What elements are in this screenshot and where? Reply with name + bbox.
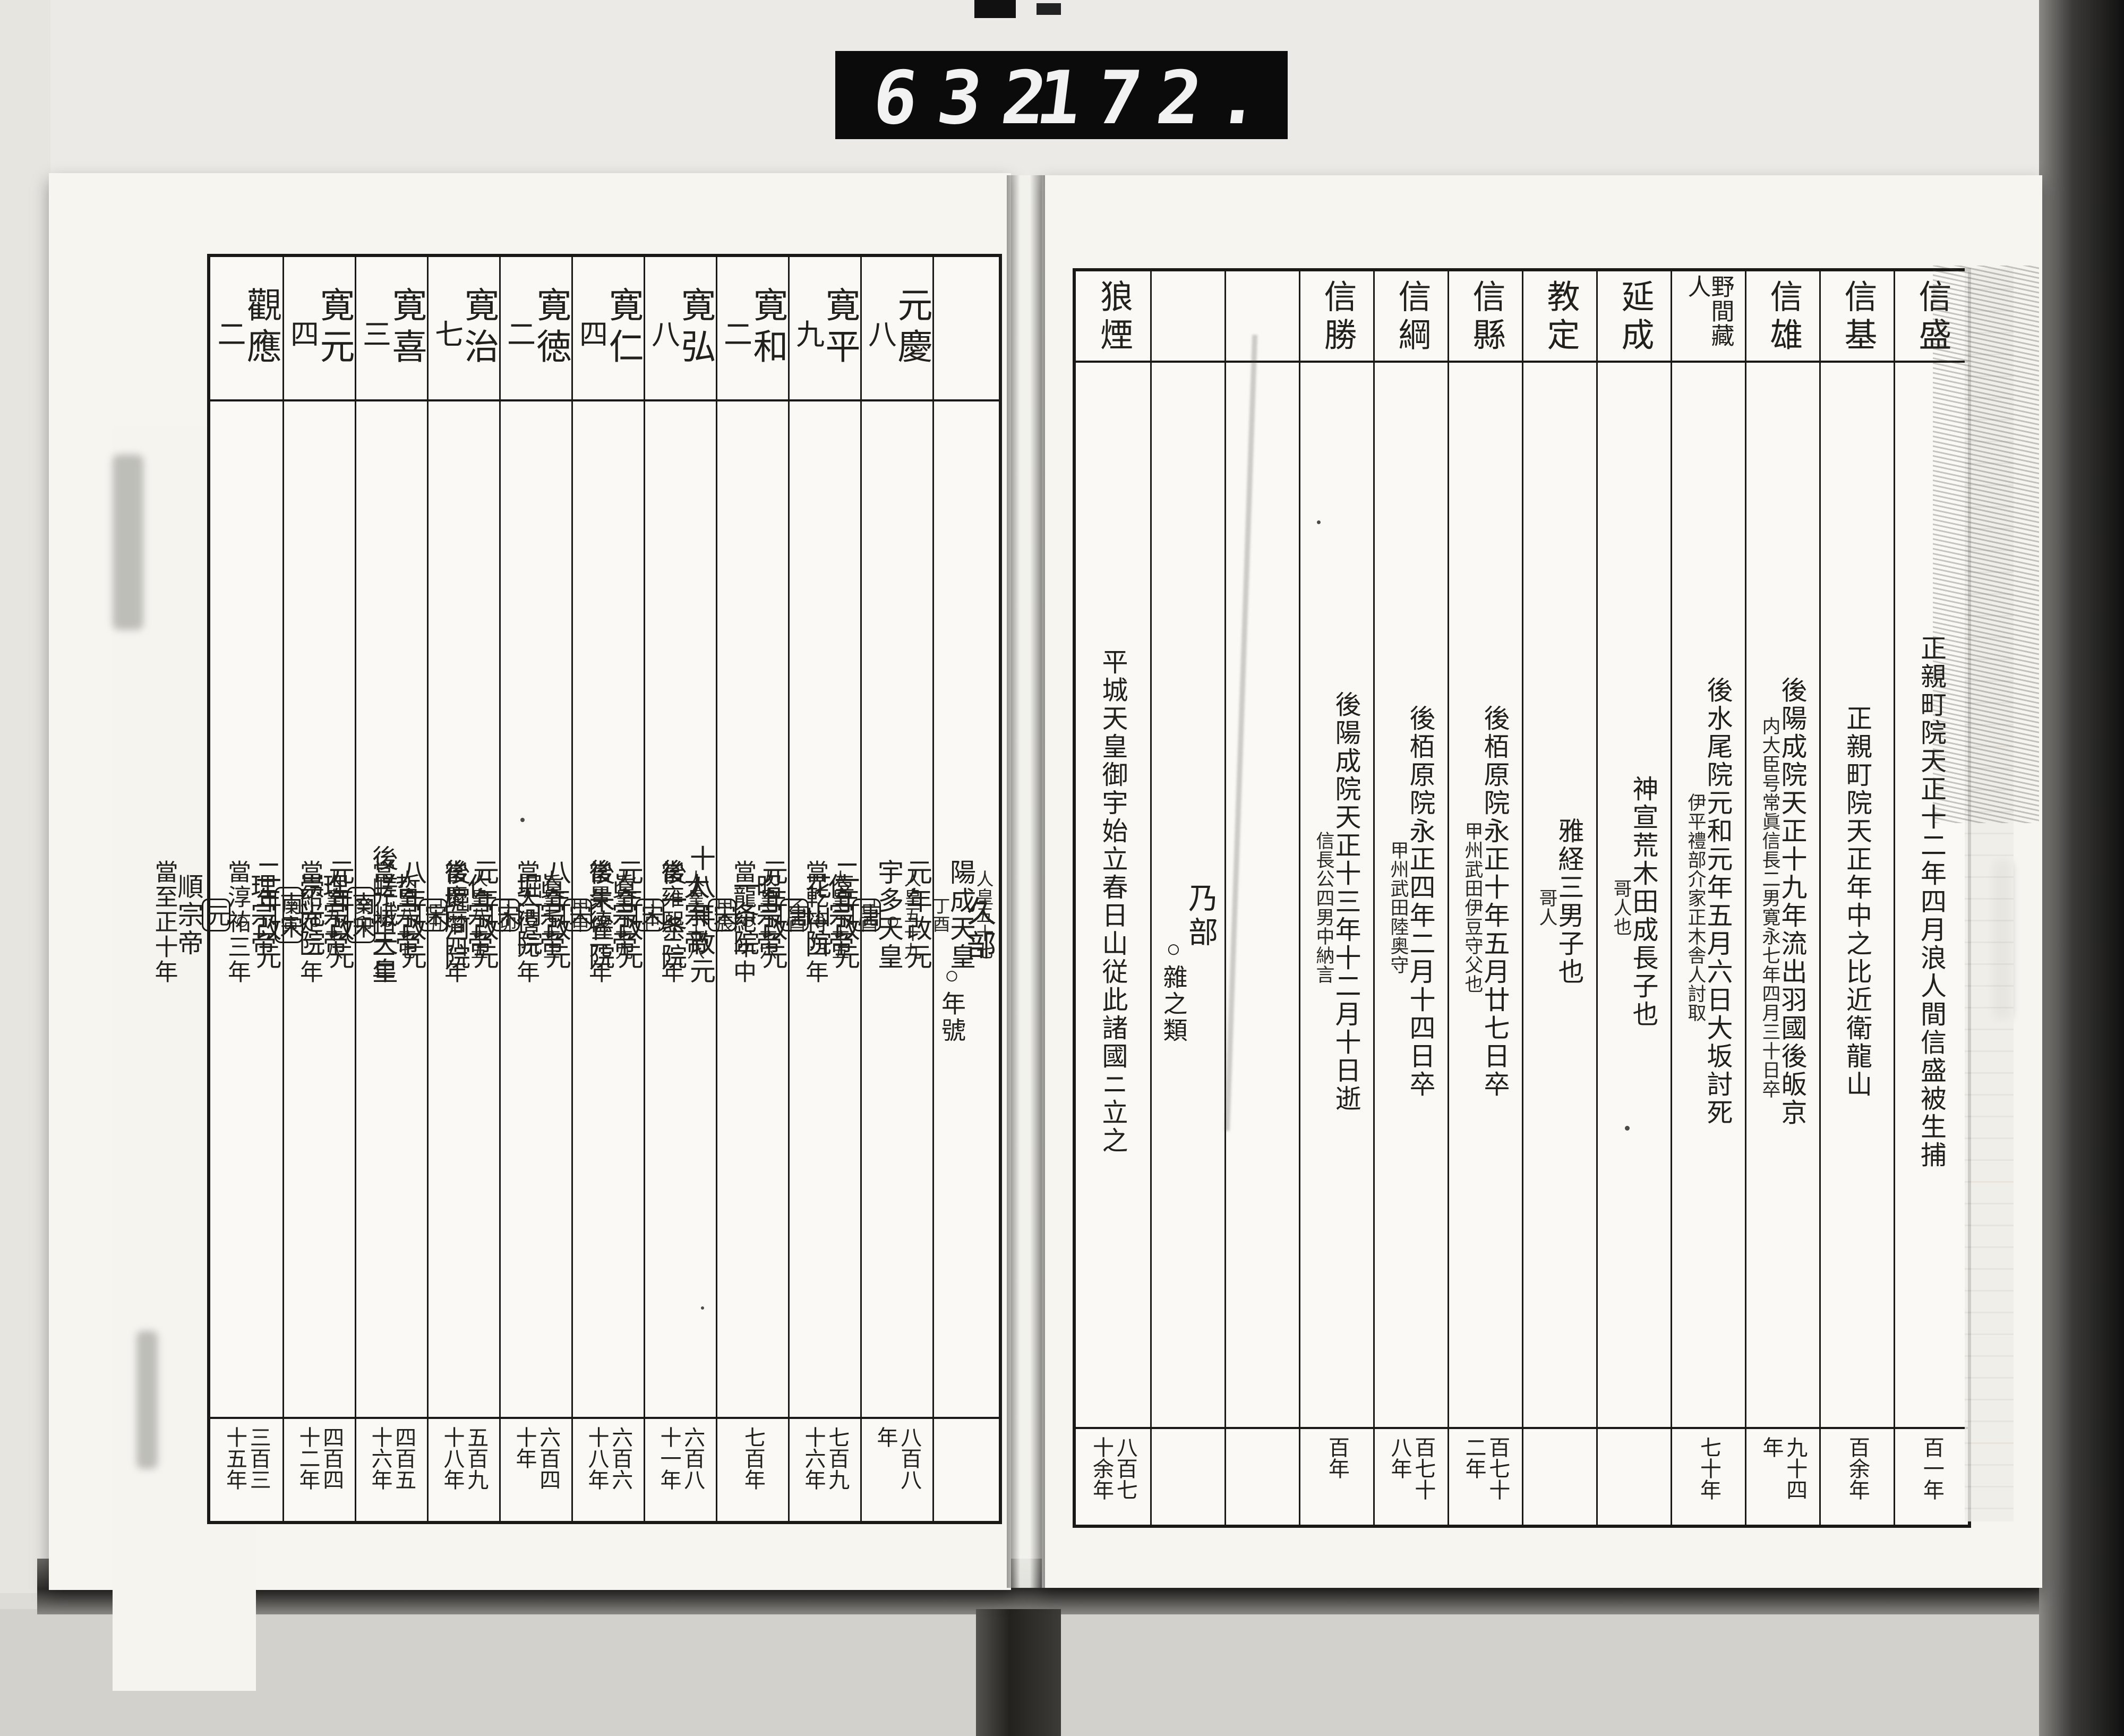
era-years-cell: 五百九十八年 xyxy=(429,1417,499,1499)
era-years-cell xyxy=(934,1417,999,1499)
era-years-value: 四百四十二年 xyxy=(296,1426,344,1499)
era-header-cell: 寛喜三 xyxy=(356,257,427,401)
entry-years-cell: 百余年 xyxy=(1821,1427,1894,1513)
entry-years-cell xyxy=(1152,1427,1224,1513)
entry-name-label: 信縣 xyxy=(1469,279,1502,356)
entry-years-value: 百七十二年 xyxy=(1462,1436,1510,1513)
chinese-emperor-text: 理宗帝 xyxy=(321,873,347,957)
entry-years-cell: 九十四年 xyxy=(1746,1427,1819,1513)
entry-column-野間藏人: 野間藏人後水尾院元和元年五月六日大坂討死伊平禮部介家正木舎人討取七十年 xyxy=(1671,271,1745,1525)
scan-margin-bottom xyxy=(0,1609,2124,1736)
era-duration-label: 八 xyxy=(649,319,678,348)
chinese-emperor-text: 昭宗帝 xyxy=(754,873,780,957)
entry-body-cell: 雅経三男子也哥人 xyxy=(1523,363,1596,1427)
entry-text-run: 後栢原院永正四年二月十四日卒甲州武田陸奥守 xyxy=(1389,377,1434,1427)
era-header-run: 寛和二 xyxy=(721,287,785,370)
entry-years-value: 百年 xyxy=(1325,1436,1349,1513)
era-header-run: 寛弘八 xyxy=(649,287,713,370)
chinese-emperor-text: 眞宗帝 xyxy=(537,873,563,957)
entry-text-run: 後陽成院天正十九年流出羽國後皈京内大臣号常眞信長二男寛永七年四月三十日卒 xyxy=(1761,377,1805,1427)
era-header-cell: 寛治七 xyxy=(429,257,499,401)
entry-name-label: 教定 xyxy=(1544,279,1577,356)
chinese-era-text: 當景德元年 xyxy=(586,860,610,985)
entry-header-cell: 野間藏人 xyxy=(1672,271,1745,363)
right-page: 信盛正親町院天正十二年四月浪人間信盛被生捕百一年信基正親町院天正年中之比近衛龍山… xyxy=(1042,175,2042,1588)
entry-main-text: 後水尾院元和元年五月六日大坂討死 xyxy=(1705,677,1731,1127)
entry-text-run: 後水尾院元和元年五月六日大坂討死伊平禮部介家正木舎人討取 xyxy=(1686,377,1731,1427)
era-name-label: 寛徳 xyxy=(533,287,568,370)
era-body-cell: 久部○年號 xyxy=(934,401,999,1417)
scan-edge-dark-band xyxy=(2039,0,2124,1736)
chinese-emperor-text: 太宗帝 xyxy=(682,873,708,957)
chinese-emperor-text: 僖宗帝 xyxy=(826,873,852,957)
entry-subsection-label: ○雜之類 xyxy=(1161,935,1186,1044)
era-duration-label: 四 xyxy=(288,319,316,348)
entry-header-cell: 教定 xyxy=(1523,271,1596,363)
era-text-run: 久部○年號 xyxy=(939,413,994,1417)
names-table: 信盛正親町院天正十二年四月浪人間信盛被生捕百一年信基正親町院天正年中之比近衛龍山… xyxy=(1073,268,1971,1528)
era-header-cell: 寛徳二 xyxy=(501,257,571,401)
entry-header-cell xyxy=(1152,271,1224,363)
entry-text-run: 後栢原院永正十年五月廿七日卒甲州武田伊豆守父也 xyxy=(1463,377,1508,1427)
entry-body-cell: 乃部○雜之類 xyxy=(1152,363,1224,1427)
era-years-value: 七百年 xyxy=(741,1426,765,1499)
era-header-cell: 寛和二 xyxy=(717,257,788,401)
entry-years-cell: 百七十二年 xyxy=(1449,1427,1522,1513)
era-years-value: 六百八十一年 xyxy=(657,1426,705,1499)
era-years-cell: 三百三十五年 xyxy=(210,1417,282,1499)
chinese-era-text: 當天僖元年 xyxy=(514,860,537,985)
entry-note-text: 信長公四男中納言 xyxy=(1315,831,1333,984)
counter-right-value: 172. xyxy=(1032,55,1282,141)
entry-years-cell xyxy=(1226,1427,1299,1513)
era-name-label: 寛仁 xyxy=(605,287,640,370)
section-part-label: 久部 xyxy=(964,896,994,964)
scan-margin-left xyxy=(0,0,50,1593)
chinese-era-text: 當元祐二年 xyxy=(370,860,393,985)
era-duration-label: 二 xyxy=(215,319,243,348)
era-header-run: 寛徳二 xyxy=(504,287,568,370)
entry-main-text: 後栢原院永正十年五月廿七日卒 xyxy=(1482,705,1508,1099)
era-name-table: 久部○年號元慶八人皇五十七陽成天皇丁酉元年改元○唐僖宗帝當乾符四年八百八年寛平九… xyxy=(207,254,1002,1524)
section-column: 乃部○雜之類 xyxy=(1150,271,1224,1525)
entry-header-cell: 信勝 xyxy=(1300,271,1373,363)
era-name-label: 寛治 xyxy=(461,287,496,370)
era-years-cell: 六百八十一年 xyxy=(645,1417,716,1499)
era-duration-label: 八 xyxy=(866,319,894,348)
era-years-cell: 六百六十八年 xyxy=(573,1417,644,1499)
era-header-run: 寛元四 xyxy=(288,287,352,370)
era-column-元慶: 元慶八人皇五十七陽成天皇丁酉元年改元○唐僖宗帝當乾符四年八百八年 xyxy=(860,257,932,1521)
entry-text-run: 神宣荒木田成長子也哥人也 xyxy=(1612,377,1657,1427)
era-duration-label: 七 xyxy=(432,319,461,348)
chinese-era-text: 當乾符四年 xyxy=(803,860,826,985)
entry-body-cell: 後陽成院天正十九年流出羽國後皈京内大臣号常眞信長二男寛永七年四月三十日卒 xyxy=(1746,363,1819,1427)
era-years-value: 三百三十五年 xyxy=(222,1426,270,1499)
dust-speck xyxy=(1317,520,1321,524)
entry-text-run: 雅経三男子也哥人 xyxy=(1538,377,1582,1427)
binding-mark xyxy=(1037,3,1061,15)
entry-main-text: 乃部 xyxy=(1186,883,1215,951)
era-header-cell: 觀應二 xyxy=(210,257,282,401)
chinese-era-text: 當龍紀年中 xyxy=(731,860,754,985)
era-years-cell: 四百四十二年 xyxy=(284,1417,355,1499)
entry-text-run: 正親町院天正年中之比近衛龍山 xyxy=(1844,377,1870,1427)
era-duration-label: 三 xyxy=(360,319,389,348)
entry-years-cell: 百年 xyxy=(1300,1427,1373,1513)
chinese-emperor-text: 順宗帝 xyxy=(176,873,202,957)
entry-note-text: 甲州武田陸奥守 xyxy=(1389,841,1408,974)
entry-body-cell: 神宣荒木田成長子也哥人也 xyxy=(1598,363,1671,1427)
era-duration-label: 二 xyxy=(504,319,533,348)
entry-note-text: 伊平禮部介家正木舎人討取 xyxy=(1686,793,1705,1022)
chinese-emperor-text: 眞宗帝 xyxy=(610,873,636,957)
era-duration-label: 二 xyxy=(721,319,750,348)
era-header-run: 寛喜三 xyxy=(360,287,424,370)
entry-column-教定: 教定雅経三男子也哥人 xyxy=(1522,271,1596,1525)
entry-header-cell: 延成 xyxy=(1598,271,1671,363)
entry-main-text: 雅経三男子也 xyxy=(1556,817,1582,986)
chinese-era-text: 當紹定二年 xyxy=(297,860,321,985)
era-change-text: 元年改元 xyxy=(904,859,930,971)
entry-main-text: 神宣荒木田成長子也 xyxy=(1631,775,1657,1029)
era-years-value: 八百八年 xyxy=(873,1426,921,1499)
dynasty-box-label: 唐 xyxy=(852,899,881,931)
entry-name-label: 信基 xyxy=(1841,279,1874,356)
chinese-era-text: 當雍熙二年 xyxy=(658,860,682,985)
entry-years-cell: 百一年 xyxy=(1895,1427,1968,1513)
entry-header-cell: 信縣 xyxy=(1449,271,1522,363)
chinese-era-text: 當淳祐三年 xyxy=(225,860,249,985)
chinese-emperor-text: 理宗帝 xyxy=(249,873,275,957)
entry-years-cell: 百七十八年 xyxy=(1375,1427,1448,1513)
entry-years-cell: 七十年 xyxy=(1672,1427,1745,1513)
entry-text-run: 後陽成院天正十三年十二月十日逝信長公四男中納言 xyxy=(1315,377,1359,1427)
entry-years-cell xyxy=(1523,1427,1596,1513)
era-name-label: 寛和 xyxy=(750,287,785,370)
era-header-cell: 寛弘八 xyxy=(645,257,716,401)
chinese-emperor-text: 仁宗帝 xyxy=(465,873,491,957)
entry-years-value: 百余年 xyxy=(1845,1436,1869,1513)
era-years-cell: 七百年 xyxy=(717,1417,788,1499)
entry-main-text: 後陽成院天正十九年流出羽國後皈京 xyxy=(1779,677,1805,1127)
era-header-cell: 寛仁四 xyxy=(573,257,644,401)
dynasty-marker: ○ xyxy=(881,908,904,934)
page-gutter xyxy=(1007,175,1045,1588)
era-years-value: 七百九十六年 xyxy=(801,1426,849,1499)
era-body-cell: 人皇五十七陽成天皇丁酉元年改元○唐僖宗帝當乾符四年 xyxy=(862,401,932,1417)
entry-header-cell xyxy=(1226,271,1299,363)
entry-header-cell: 信基 xyxy=(1821,271,1894,363)
era-header-cell: 寛元四 xyxy=(284,257,355,401)
entry-name-label: 野間藏人 xyxy=(1685,275,1732,361)
entry-years-cell: 八百七十余年 xyxy=(1076,1427,1150,1513)
entry-note-text: 内大臣号常眞信長二男寛永七年四月三十日卒 xyxy=(1761,716,1779,1099)
scan-noise-field xyxy=(1933,266,2039,823)
entry-body-cell: 平城天皇御宇始立春日山従此諸國ニ立之 xyxy=(1076,363,1150,1427)
entry-years-value: 九十四年 xyxy=(1759,1436,1807,1513)
entry-column-信雄: 信雄後陽成院天正十九年流出羽國後皈京内大臣号常眞信長二男寛永七年四月三十日卒九十… xyxy=(1745,271,1819,1525)
entry-note-text: 哥人 xyxy=(1538,888,1556,927)
chinese-era-text: 當至正十年 xyxy=(152,860,176,985)
era-header-run: 觀應二 xyxy=(215,287,278,370)
era-years-cell: 七百九十六年 xyxy=(790,1417,860,1499)
entry-main-text: 後陽成院天正十三年十二月十日逝 xyxy=(1333,691,1359,1113)
era-years-cell: 八百八年 xyxy=(862,1417,932,1499)
era-header-run: 寛平九 xyxy=(793,287,857,370)
entry-note-text: 哥人也 xyxy=(1612,879,1631,936)
entry-name-label: 信雄 xyxy=(1767,279,1800,356)
section-subsection-label: ○年號 xyxy=(939,962,964,1044)
dust-speck xyxy=(520,818,525,822)
left-page: 久部○年號元慶八人皇五十七陽成天皇丁酉元年改元○唐僖宗帝當乾符四年八百八年寛平九… xyxy=(49,173,1011,1590)
era-duration-label: 九 xyxy=(793,319,822,348)
era-name-label: 觀應 xyxy=(243,287,278,370)
entry-text-run: 平城天皇御宇始立春日山従此諸國ニ立之 xyxy=(1100,377,1126,1427)
era-name-label: 寛平 xyxy=(822,287,857,370)
entry-header-cell: 狼煙 xyxy=(1076,271,1150,363)
entry-name-label: 信勝 xyxy=(1321,279,1354,356)
era-name-label: 寛弘 xyxy=(678,287,713,370)
entry-column-信綱: 信綱後栢原院永正四年二月十四日卒甲州武田陸奥守百七十八年 xyxy=(1373,271,1448,1525)
entry-header-cell: 信雄 xyxy=(1746,271,1819,363)
era-years-value: 六百六十八年 xyxy=(585,1426,632,1499)
entry-note-text: 甲州武田伊豆守父也 xyxy=(1463,822,1482,994)
entry-body-cell: 後栢原院永正四年二月十四日卒甲州武田陸奥守 xyxy=(1375,363,1448,1427)
entry-body-cell: 正親町院天正年中之比近衛龍山 xyxy=(1821,363,1894,1427)
entry-years-value: 百七十八年 xyxy=(1388,1436,1435,1513)
era-years-value: 六百四十年 xyxy=(512,1426,560,1499)
entry-column-信基: 信基正親町院天正年中之比近衛龍山百余年 xyxy=(1819,271,1894,1525)
entry-name-label: 信綱 xyxy=(1395,279,1428,356)
binding-mark xyxy=(974,0,1016,18)
entry-main-text: 平城天皇御宇始立春日山従此諸國ニ立之 xyxy=(1100,648,1126,1155)
entry-years-value: 八百七十余年 xyxy=(1089,1436,1137,1513)
era-years-value: 四百五十六年 xyxy=(368,1426,416,1499)
entry-body-cell: 後栢原院永正十年五月廿七日卒甲州武田伊豆守父也 xyxy=(1449,363,1522,1427)
microfilm-frame-counter: 632 172. xyxy=(836,52,1287,138)
era-name-label: 元慶 xyxy=(894,287,929,370)
book-spine-shadow xyxy=(976,1609,1061,1736)
entry-years-cell xyxy=(1598,1427,1671,1513)
era-header-run: 元慶八 xyxy=(866,287,929,370)
era-header-run: 寛仁四 xyxy=(577,287,640,370)
dust-speck xyxy=(1625,1126,1630,1131)
entry-column-狼煙: 狼煙平城天皇御宇始立春日山従此諸國ニ立之八百七十余年 xyxy=(1076,271,1150,1525)
entry-name-label: 狼煙 xyxy=(1097,279,1129,356)
entry-main-text: 後栢原院永正四年二月十四日卒 xyxy=(1408,705,1434,1099)
era-header-run: 寛治七 xyxy=(432,287,496,370)
section-column-久部: 久部○年號 xyxy=(932,257,999,1521)
entry-header-cell: 信綱 xyxy=(1375,271,1448,363)
entry-name-label: 延成 xyxy=(1618,279,1651,356)
era-years-cell: 六百四十年 xyxy=(501,1417,571,1499)
era-name-label: 寛元 xyxy=(316,287,352,370)
marginalia-smudge xyxy=(113,455,143,630)
entry-body-cell: 後陽成院天正十三年十二月十日逝信長公四男中納言 xyxy=(1300,363,1373,1427)
entry-column-延成: 延成神宣荒木田成長子也哥人也 xyxy=(1596,271,1671,1525)
chinese-era-text: 當慶暦四年 xyxy=(442,860,465,985)
dust-speck xyxy=(701,1306,704,1310)
entry-years-value: 百一年 xyxy=(1920,1436,1943,1513)
era-header-cell: 元慶八 xyxy=(862,257,932,401)
era-years-value: 五百九十八年 xyxy=(440,1426,488,1499)
entry-years-value: 七十年 xyxy=(1697,1436,1720,1513)
era-header-cell xyxy=(934,257,999,401)
entry-column-信勝: 信勝後陽成院天正十三年十二月十日逝信長公四男中納言百年 xyxy=(1299,271,1373,1525)
era-name-label: 寛喜 xyxy=(389,287,424,370)
chinese-emperor-text: 哲宗帝 xyxy=(393,873,419,957)
entry-body-cell: 後水尾院元和元年五月六日大坂討死伊平禮部介家正木舎人討取 xyxy=(1672,363,1745,1427)
entry-column-信縣: 信縣後栢原院永正十年五月廿七日卒甲州武田伊豆守父也百七十二年 xyxy=(1448,271,1522,1525)
era-duration-label: 四 xyxy=(577,319,605,348)
era-header-cell: 寛平九 xyxy=(790,257,860,401)
entry-text-run: 乃部○雜之類 xyxy=(1161,377,1215,1427)
entry-main-text: 正親町院天正年中之比近衛龍山 xyxy=(1844,705,1870,1099)
scanned-book-spread: 632 172. 久部○年號元慶八人皇五十七陽成天皇丁酉元年改元○唐僖宗帝當乾符… xyxy=(0,0,2124,1736)
era-years-cell: 四百五十六年 xyxy=(356,1417,427,1499)
